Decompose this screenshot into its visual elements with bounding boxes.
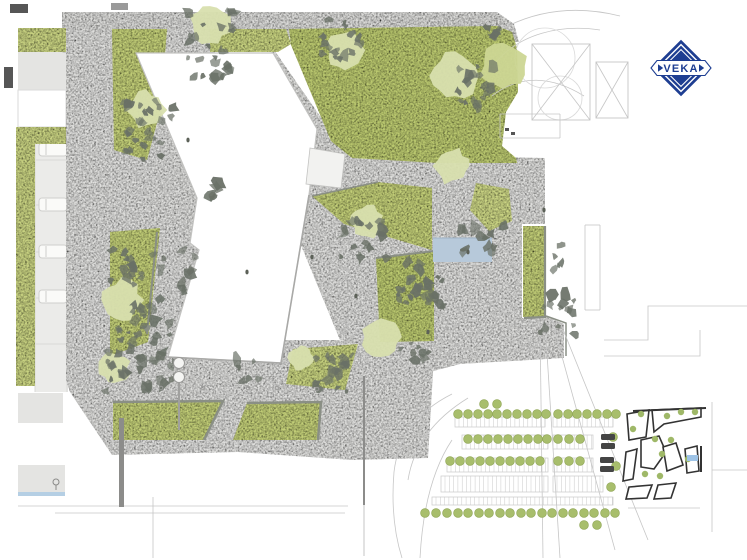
key-plan-building: [623, 449, 637, 481]
parking-tree: [593, 521, 602, 530]
parking-tree: [513, 410, 522, 419]
parking-tree: [446, 457, 455, 466]
parking-tree: [443, 509, 452, 518]
water-channel: [18, 492, 65, 496]
parked-car: [39, 290, 67, 303]
parking-tree: [559, 509, 568, 518]
parking-tree: [516, 457, 525, 466]
parking-tree: [583, 410, 592, 419]
pedestrian: [542, 208, 545, 213]
parking-tree: [573, 410, 582, 419]
street: [35, 127, 68, 392]
lawn-area: [16, 143, 35, 386]
parking-tree: [504, 435, 513, 444]
key-plan-tree: [692, 409, 698, 415]
margin-mark: [4, 67, 13, 88]
parking-tree: [454, 509, 463, 518]
key-plan-tree: [668, 437, 674, 443]
parking-tree: [536, 457, 545, 466]
parking-tree: [493, 400, 502, 409]
parking-tree: [580, 521, 589, 530]
parking-tree: [432, 509, 441, 518]
veka-logo: VEKA: [651, 40, 711, 97]
context-curve: [500, 10, 620, 30]
parked-car: [39, 198, 67, 211]
key-plan-tree: [678, 409, 684, 415]
parking-tree: [517, 509, 526, 518]
survey-mark: [505, 128, 509, 131]
parking-tree: [480, 400, 489, 409]
key-plan-tree: [642, 471, 648, 477]
parking-tree: [421, 509, 430, 518]
parked-car-dark: [600, 466, 614, 472]
parking-tree: [506, 457, 515, 466]
parking-tree: [466, 457, 475, 466]
context-outline: [604, 306, 747, 340]
key-plan-building: [626, 485, 652, 499]
parking-tree: [484, 435, 493, 444]
parking-tree: [464, 410, 473, 419]
pedestrian: [310, 255, 313, 260]
parked-car-dark: [601, 443, 615, 449]
parking-tree: [456, 457, 465, 466]
key-plan-building: [654, 483, 676, 499]
logo-wordmark: VEKA: [663, 63, 698, 75]
parking-tree: [514, 435, 523, 444]
parking-tree: [580, 509, 589, 518]
parking-tree: [534, 435, 543, 444]
tree-cluster: [571, 298, 576, 304]
context-outline: [604, 330, 700, 356]
context-tree-outline: [538, 76, 582, 120]
parking-tree: [554, 457, 563, 466]
parked-car-dark: [601, 434, 615, 440]
parking-tree: [603, 410, 612, 419]
parking-tree: [538, 509, 547, 518]
parking-tree: [496, 457, 505, 466]
lawn-area: [523, 226, 545, 317]
tree-cluster: [156, 104, 162, 111]
parking-tree: [484, 410, 493, 419]
parking-tree: [526, 457, 535, 466]
tree-cluster: [557, 242, 566, 249]
parking-tree: [493, 410, 502, 419]
pedestrian: [354, 294, 357, 299]
pedestrian: [186, 138, 189, 143]
key-plan-tree: [659, 451, 665, 457]
parking-tree: [533, 410, 542, 419]
key-plan-building: [663, 443, 683, 471]
parking-tree: [506, 509, 515, 518]
parking-tree: [474, 410, 483, 419]
tree-cluster: [571, 323, 576, 328]
parking-tree: [554, 410, 563, 419]
tree-cluster: [545, 289, 559, 303]
light-mast: [174, 372, 185, 383]
key-plan-layer: [623, 408, 706, 499]
pedestrian: [466, 250, 469, 255]
freestanding-wall: [119, 418, 124, 507]
parking-tree: [486, 457, 495, 466]
key-plan-tree: [664, 413, 670, 419]
parking-tree: [554, 435, 563, 444]
parking-tree: [612, 410, 621, 419]
parking-tree: [527, 509, 536, 518]
context-curve: [393, 472, 402, 558]
parking-tree: [503, 410, 512, 419]
tree-cluster: [569, 331, 579, 339]
building-passage: [306, 148, 345, 188]
parking-tree: [548, 509, 557, 518]
tree-cluster: [550, 265, 558, 275]
key-plan-tree: [630, 426, 636, 432]
parking-layer: [421, 400, 621, 530]
parking-tree: [454, 410, 463, 419]
parking-tree: [565, 457, 574, 466]
parking-tree: [464, 435, 473, 444]
parking-tree: [590, 509, 599, 518]
parking-tree: [524, 435, 533, 444]
parking-tree: [593, 410, 602, 419]
parking-tree: [496, 509, 505, 518]
key-plan-tree: [652, 436, 658, 442]
pedestrian: [245, 270, 248, 275]
parking-tree: [576, 457, 585, 466]
parking-tree: [485, 509, 494, 518]
margin-mark: [10, 4, 28, 13]
lawn-area: [18, 28, 66, 52]
key-plan-pond: [687, 455, 698, 461]
light-mast: [174, 358, 185, 369]
key-plan-tree: [657, 473, 663, 479]
parked-car: [39, 245, 67, 258]
parked-car: [39, 143, 67, 156]
parking-tree: [542, 410, 551, 419]
site-plan: VEKA: [0, 0, 747, 560]
tree-cluster: [552, 253, 558, 260]
side-building: [18, 393, 63, 423]
margin-mark-gray: [111, 3, 128, 10]
corner-building-roof: [18, 52, 66, 90]
stall-row: [432, 497, 613, 505]
parking-tree: [475, 509, 484, 518]
parking-tree: [569, 509, 578, 518]
lawn-area: [16, 127, 66, 144]
parking-tree: [523, 410, 532, 419]
street-junction: [18, 90, 66, 127]
parking-tree: [494, 435, 503, 444]
parking-tree: [464, 509, 473, 518]
parking-tree: [565, 435, 574, 444]
stall-row: [441, 476, 548, 492]
parking-tree: [611, 509, 620, 518]
parked-car-dark: [600, 457, 614, 463]
pedestrian: [426, 330, 429, 335]
site-plan-canvas: VEKA: [0, 0, 747, 560]
parking-tree: [601, 509, 610, 518]
parking-tree: [564, 410, 573, 419]
lawn-area: [233, 402, 321, 440]
survey-mark: [511, 132, 515, 135]
key-plan-tree: [638, 411, 644, 417]
parking-tree: [476, 457, 485, 466]
parking-tree: [474, 435, 483, 444]
parking-tree: [607, 483, 616, 492]
parking-tree: [576, 435, 585, 444]
parking-tree: [543, 435, 552, 444]
